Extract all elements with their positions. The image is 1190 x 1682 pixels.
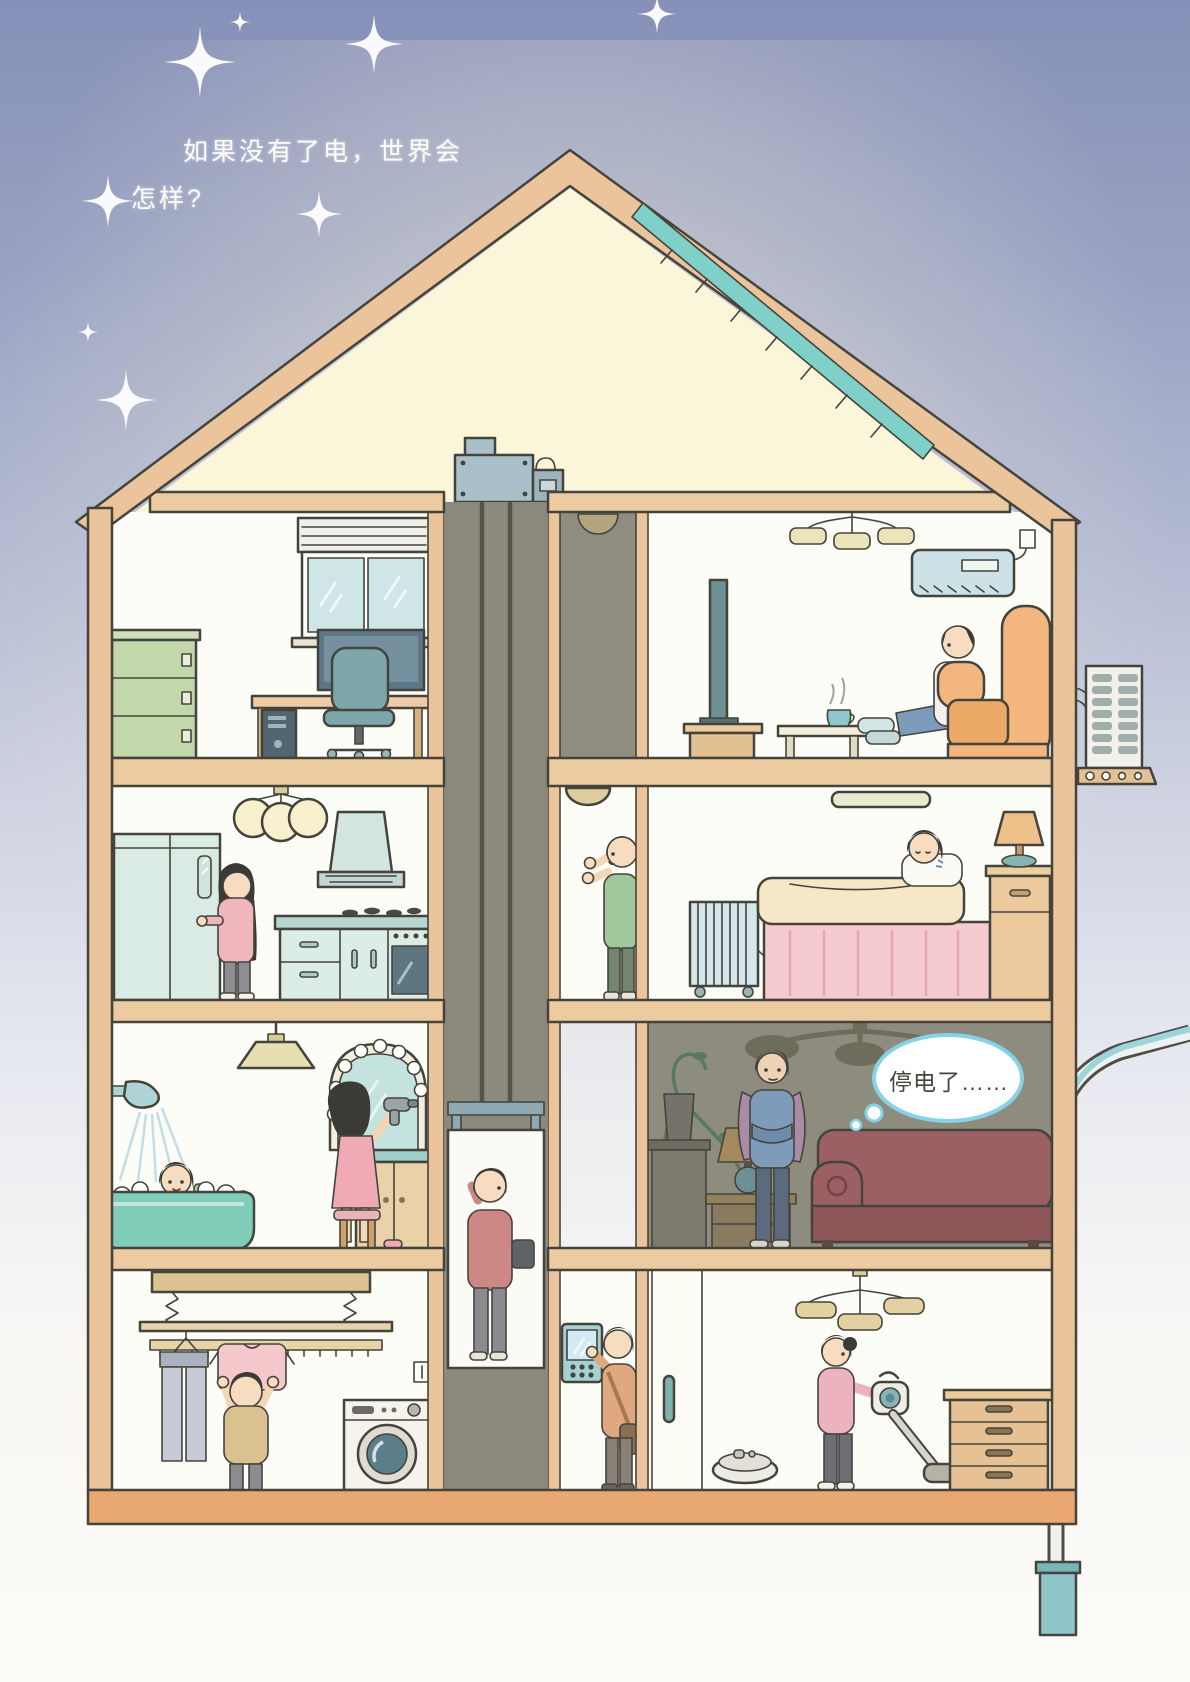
kitchen [112, 786, 444, 1000]
bedside-lamp [995, 812, 1043, 867]
kitchen-counter [275, 908, 435, 1000]
window [292, 518, 438, 647]
tv-stand [684, 724, 762, 733]
sparkle-icon [164, 26, 236, 98]
sparkle-icon [344, 14, 404, 74]
dark-living-room [648, 1022, 1052, 1250]
briefcase [512, 1240, 534, 1268]
sparkle-icon [637, 0, 677, 34]
laundry-room [112, 1270, 444, 1490]
dresser [944, 1390, 1054, 1490]
sparkle-icon [81, 174, 135, 228]
hallway-top-dark [560, 512, 636, 758]
right-wall [1052, 520, 1076, 1490]
study-room [108, 512, 444, 761]
vase [664, 1094, 694, 1146]
sparkle-icon [229, 11, 251, 33]
plant-stand [652, 1150, 706, 1248]
thought-bubble-text: 停电了…… [876, 1063, 1022, 1097]
power-outlet [1020, 530, 1035, 548]
attic [100, 188, 1050, 538]
sparkle-icon [295, 190, 343, 238]
door-handle [664, 1376, 674, 1422]
hallway-floor2 [560, 786, 638, 1000]
bedroom [648, 786, 1054, 1000]
illustration-no-electricity-house: 如果没有了电，世界会 怎样? 停电了…… [0, 0, 1190, 1682]
washing-machine [344, 1400, 430, 1490]
bathroom [104, 1022, 444, 1250]
tv-living-room [648, 496, 1052, 758]
elevator-car [448, 1102, 544, 1368]
family-room [648, 1268, 1054, 1490]
sparkle-icon [77, 321, 99, 343]
teacup [827, 710, 850, 726]
left-wall [88, 508, 112, 1490]
nightstand [986, 866, 1054, 1000]
lobby [560, 1270, 638, 1491]
caption-line-1: 如果没有了电，世界会 [183, 132, 463, 168]
bedroom-ceiling-lamp [832, 792, 930, 807]
drawer-cabinet [108, 630, 200, 758]
outdoor-ac-unit [1076, 666, 1156, 784]
foundation [88, 1490, 1076, 1524]
scene [0, 0, 1190, 1682]
entry-door [652, 1270, 702, 1490]
sparkle-icon [95, 369, 157, 431]
caption-line-2: 怎样? [131, 179, 204, 215]
sofa [812, 1130, 1052, 1250]
